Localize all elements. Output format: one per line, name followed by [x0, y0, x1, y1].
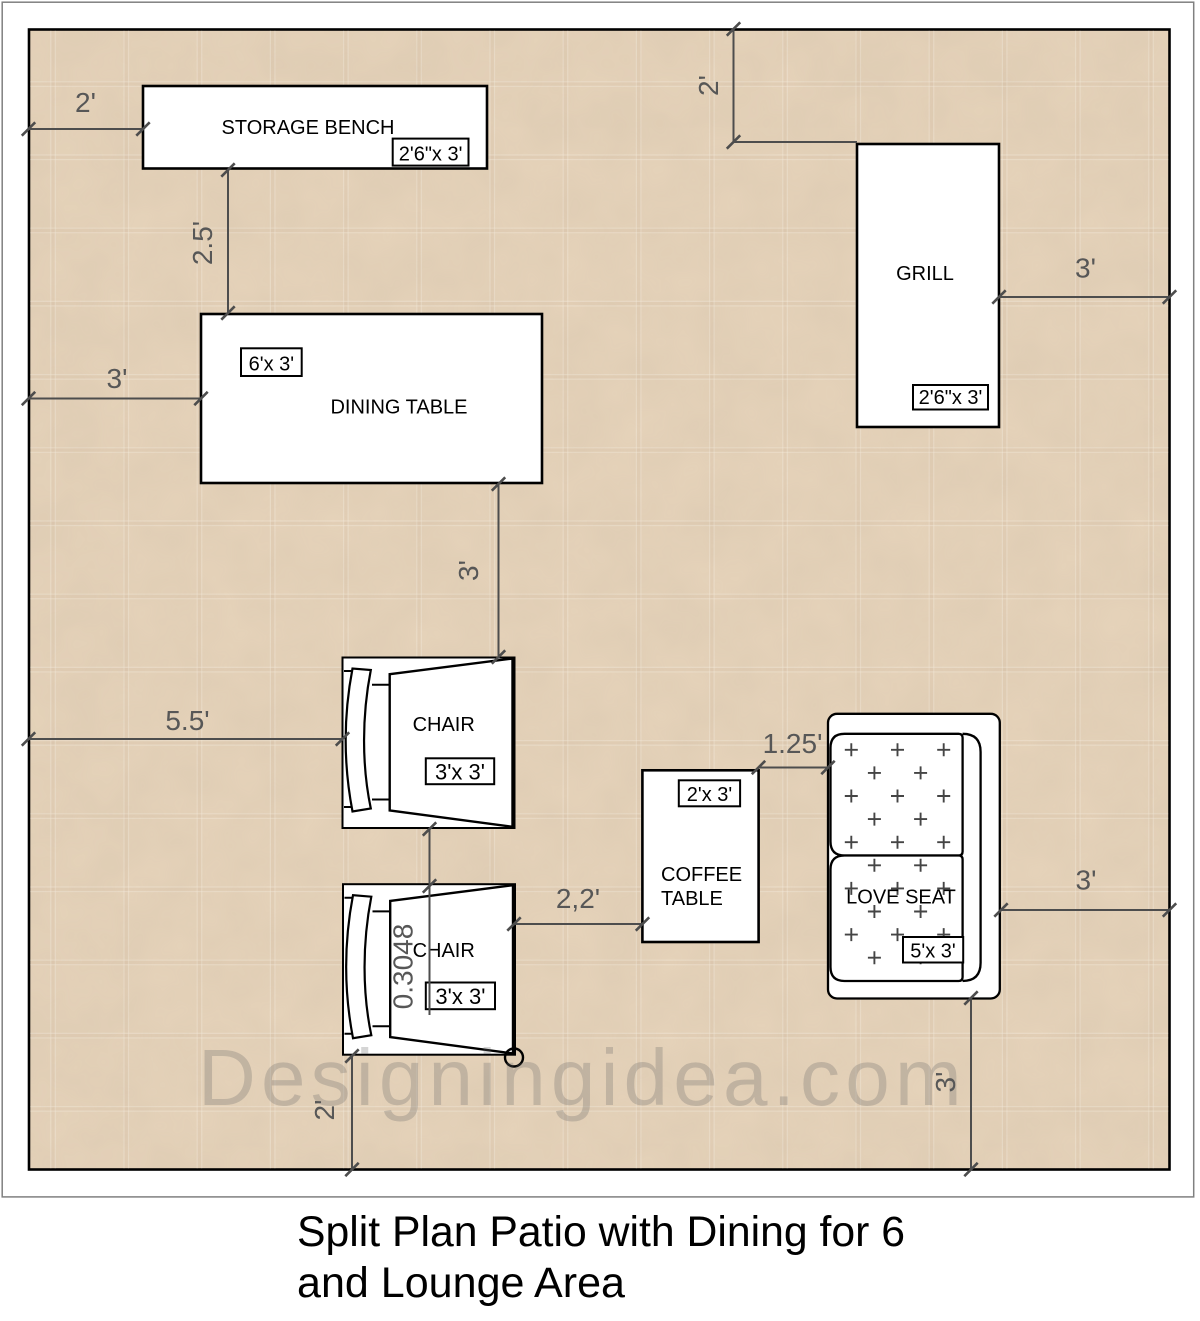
svg-text:3': 3'	[453, 560, 484, 581]
svg-text:2.5': 2.5'	[187, 221, 218, 265]
svg-text:1.25': 1.25'	[763, 728, 823, 759]
svg-text:3'x 3': 3'x 3'	[435, 984, 485, 1009]
svg-text:2'6"x 3': 2'6"x 3'	[399, 144, 463, 166]
svg-text:3': 3'	[1075, 253, 1096, 284]
svg-text:0.3048: 0.3048	[388, 924, 419, 1010]
svg-text:Split Plan Patio with Dining f: Split Plan Patio with Dining for 6	[297, 1208, 905, 1256]
svg-text:2': 2'	[693, 75, 724, 96]
svg-text:3'x 3': 3'x 3'	[435, 760, 485, 785]
svg-text:5'x 3': 5'x 3'	[910, 941, 955, 963]
svg-text:TABLE: TABLE	[661, 888, 723, 910]
svg-text:2'x 3': 2'x 3'	[687, 784, 732, 806]
svg-text:5.5': 5.5'	[165, 705, 209, 736]
svg-text:CHAIR: CHAIR	[413, 940, 475, 962]
svg-text:STORAGE BENCH: STORAGE BENCH	[222, 117, 395, 139]
svg-text:6'x 3': 6'x 3'	[249, 354, 294, 376]
svg-text:LOVE SEAT: LOVE SEAT	[846, 887, 956, 909]
svg-text:3': 3'	[107, 363, 128, 394]
svg-text:CHAIR: CHAIR	[413, 714, 475, 736]
svg-text:3': 3'	[1076, 865, 1097, 896]
svg-text:2': 2'	[309, 1100, 340, 1121]
svg-text:GRILL: GRILL	[896, 263, 954, 285]
svg-text:2'6"x 3': 2'6"x 3'	[919, 387, 983, 409]
svg-text:2': 2'	[75, 87, 96, 118]
svg-text:3': 3'	[930, 1072, 961, 1093]
svg-text:DINING TABLE: DINING TABLE	[330, 397, 467, 419]
svg-text:and Lounge Area: and Lounge Area	[297, 1259, 625, 1307]
svg-text:2,2': 2,2'	[556, 883, 600, 914]
svg-text:COFFEE: COFFEE	[661, 864, 742, 886]
